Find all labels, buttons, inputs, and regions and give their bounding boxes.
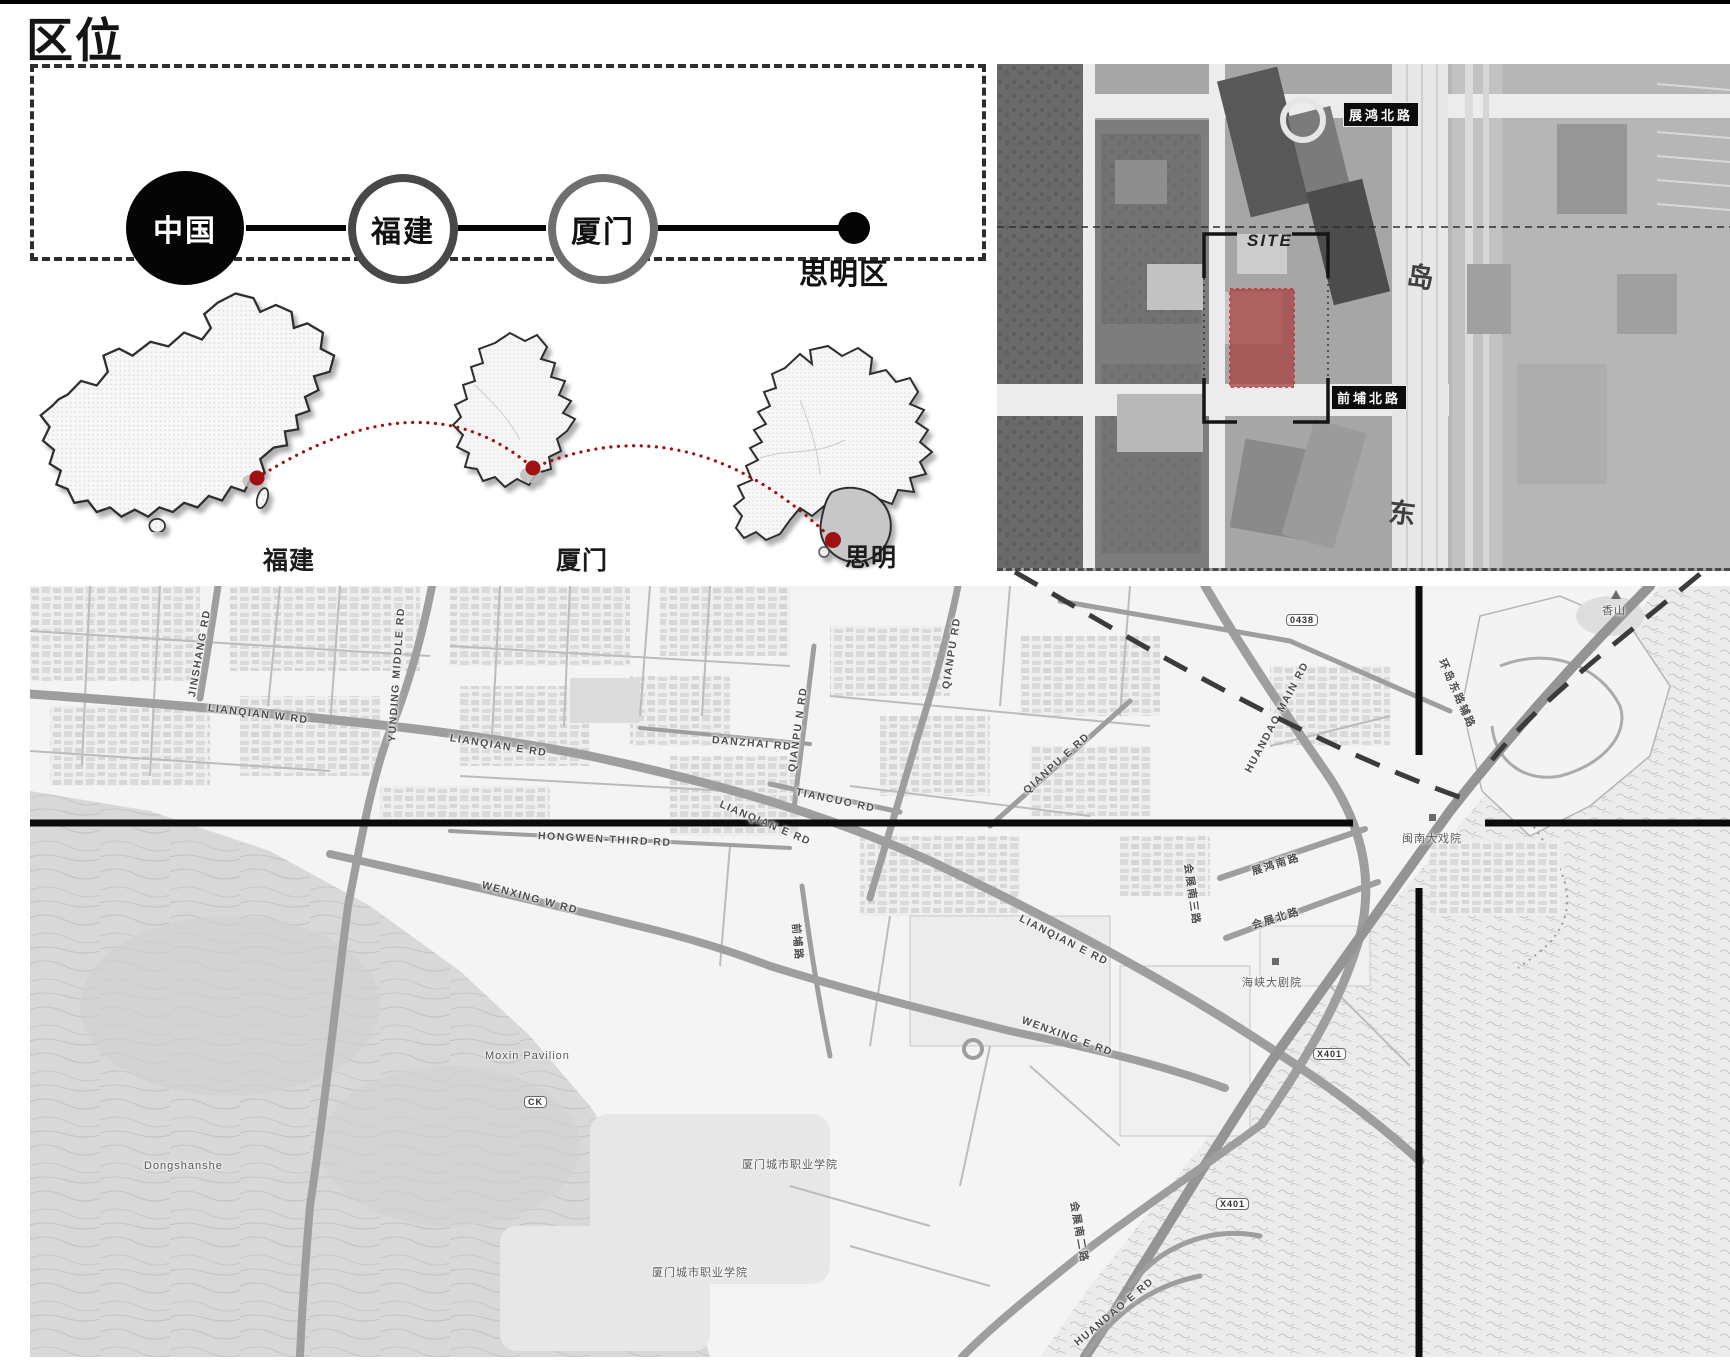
flow-connector	[246, 225, 346, 231]
site-highlight	[1230, 289, 1294, 387]
location-analysis-board: 区位 中国 福建 厦门 思明区	[0, 0, 1730, 1369]
aerial-site-photo	[997, 64, 1730, 571]
china-map-label: 福建	[263, 541, 315, 577]
flow-connector	[458, 225, 546, 231]
page-title: 区位	[26, 2, 124, 71]
flow-node-fujian: 福建	[348, 174, 458, 284]
flow-terminal-label: 思明区	[799, 251, 889, 293]
flow-node-label: 厦门	[571, 207, 635, 251]
flow-node-china: 中国	[126, 171, 244, 285]
flow-node-label: 福建	[371, 207, 435, 251]
xiamen-outline-map	[700, 340, 970, 575]
fujian-outline-map	[425, 325, 610, 520]
flow-node-label: 中国	[153, 206, 217, 250]
street-map-canvas	[30, 586, 1730, 1357]
flow-connector	[658, 225, 840, 231]
top-border-bar	[0, 0, 1730, 4]
fujian-map-label: 厦门	[556, 541, 608, 577]
flow-terminal-dot	[838, 212, 870, 244]
china-outline-map	[25, 282, 340, 532]
flow-node-xiamen: 厦门	[548, 174, 658, 284]
xiamen-map-label: 思明	[845, 538, 897, 574]
street-map	[30, 586, 1730, 1357]
aerial-canvas	[997, 64, 1730, 568]
location-flow-box: 中国 福建 厦门 思明区	[30, 64, 986, 261]
